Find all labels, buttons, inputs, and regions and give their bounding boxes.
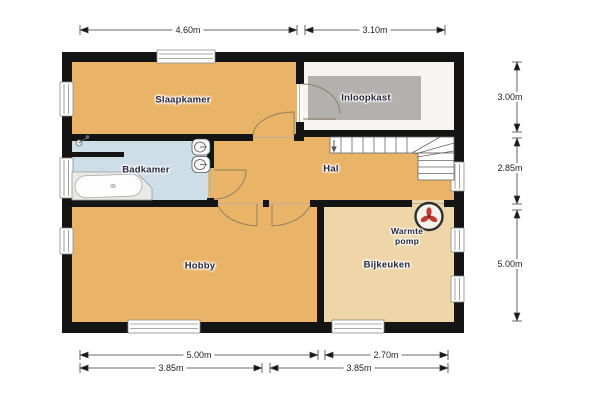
dim-right-upper: 3.00m — [494, 92, 525, 102]
wall-badkamer-partition — [72, 152, 124, 157]
dim-top-right: 3.10m — [359, 25, 390, 35]
wall-slaapkamer-hal-a — [72, 134, 253, 141]
dim-bottom-row1-left: 5.00m — [183, 350, 214, 360]
wall-hal-hobby-a — [62, 200, 218, 207]
wall-hal-hobby-post — [263, 200, 269, 207]
dim-right-lower: 5.00m — [494, 259, 525, 269]
dim-bottom-row1-right: 2.70m — [370, 350, 401, 360]
label-slaapkamer: Slaapkamer — [155, 95, 210, 106]
wall-hobby-bijkeuken — [317, 200, 324, 322]
label-hobby: Hobby — [185, 261, 216, 272]
wall-outer-top — [62, 52, 464, 62]
label-inloopkast: Inloopkast — [341, 93, 391, 104]
floor-plan-canvas: Slaapkamer Inloopkast Badkamer Hal Hobby… — [0, 0, 600, 400]
label-badkamer: Badkamer — [122, 165, 170, 176]
label-warmte-pomp: Warmte pomp — [383, 227, 431, 247]
wall-hal-bijkeuken-corner — [444, 200, 454, 207]
dim-top-left: 4.60m — [172, 25, 203, 35]
dim-bottom-row2-right: 3.85m — [343, 363, 374, 373]
label-bijkeuken: Bijkeuken — [364, 260, 411, 271]
wall-outer-right — [454, 52, 464, 333]
wall-outer-left — [62, 52, 72, 333]
label-hal: Hal — [323, 164, 338, 175]
dim-right-middle: 2.85m — [494, 163, 525, 173]
wall-inloopkast-hal — [296, 130, 454, 137]
wall-hal-hobby-b — [310, 200, 412, 207]
dim-bottom-row2-left: 3.85m — [155, 363, 186, 373]
wall-slaapkamer-inloopkast-a — [296, 62, 304, 84]
wall-outer-bottom — [62, 322, 464, 333]
wall-badkamer-hal-a — [207, 134, 214, 168]
